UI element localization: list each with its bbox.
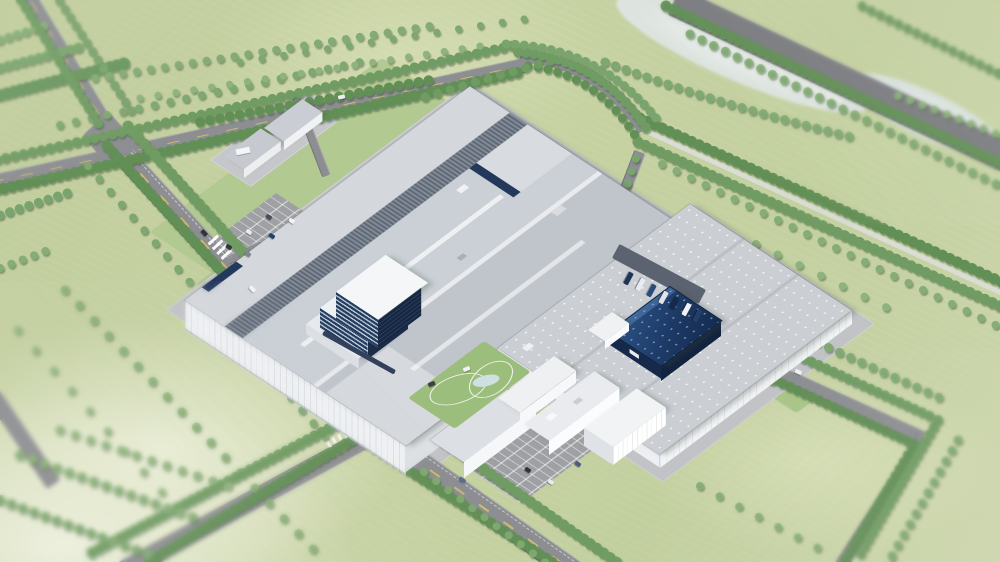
tree-row xyxy=(54,0,132,112)
tree-row xyxy=(85,406,372,556)
tree-row xyxy=(666,6,1000,166)
aerial-render-scene xyxy=(0,0,1000,562)
tree-row xyxy=(0,46,85,68)
rooftop-unit xyxy=(544,412,556,421)
tree-row xyxy=(700,486,818,548)
tree-row xyxy=(0,250,48,268)
tree-row xyxy=(95,26,430,78)
tree-row xyxy=(0,192,70,215)
rooftop-unit xyxy=(522,342,534,351)
tree-row xyxy=(862,6,1000,82)
tree-row xyxy=(148,440,352,562)
rooftop-unit xyxy=(573,397,584,405)
tree-row xyxy=(898,96,1000,138)
tree-row xyxy=(424,472,566,562)
tree-row xyxy=(0,500,150,555)
